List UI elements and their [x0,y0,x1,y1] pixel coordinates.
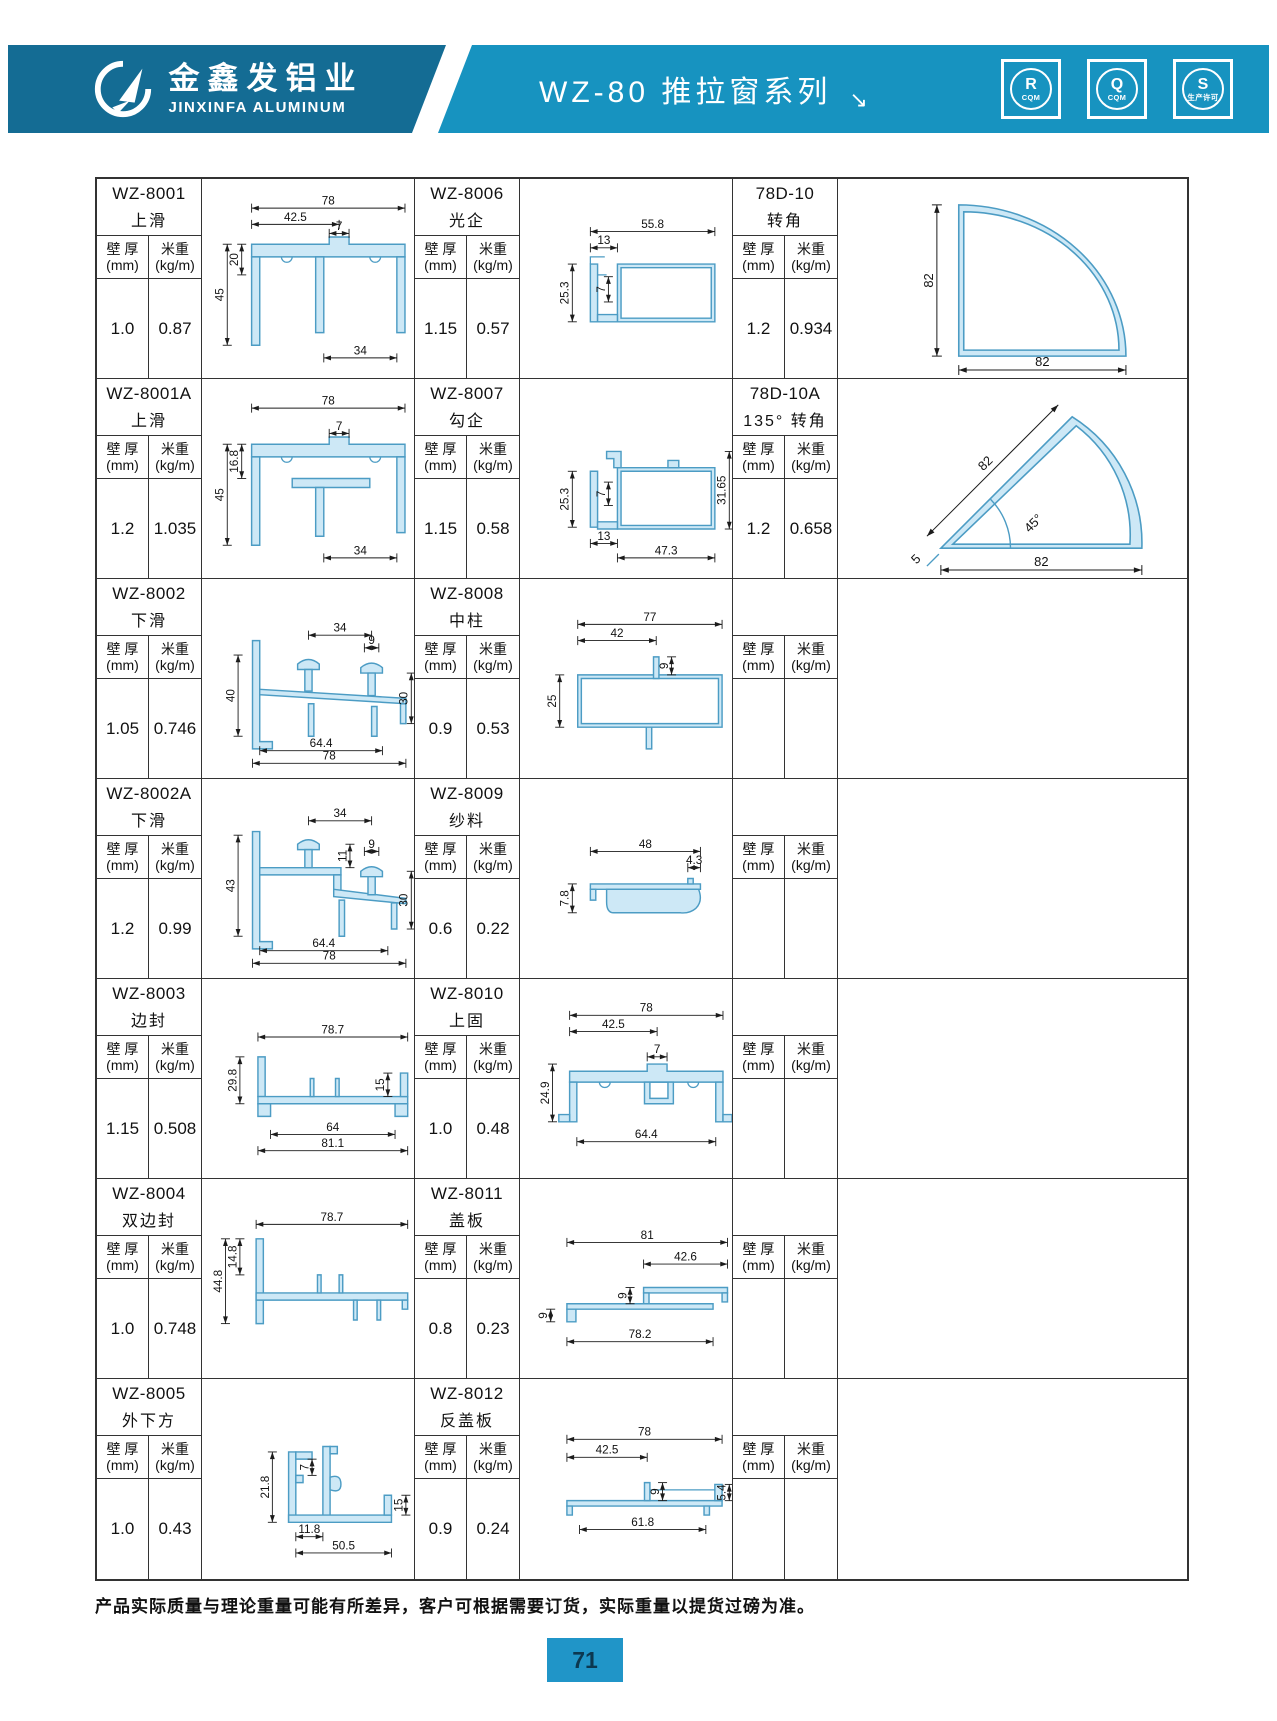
spec-headers: 壁 厚(mm)米重(kg/m) [733,1436,837,1479]
product-title: 78D-10A135° 转角 [733,379,837,436]
product-title: WZ-8009纱料 [415,779,519,836]
product-code: WZ-8002 [112,584,185,604]
svg-text:9: 9 [537,1312,550,1319]
brand-band: 金鑫发铝业 JINXINFA ALUMINUM [8,45,446,133]
svg-text:34: 34 [354,344,368,357]
wall-thickness-header: 壁 厚(mm) [97,836,149,878]
profile-drawing-wz8011: 8142.69978.2 [520,1179,733,1379]
svg-text:9: 9 [649,1488,662,1495]
wall-thickness-value: 0.9 [415,679,467,778]
wall-thickness-header: 壁 厚(mm) [97,636,149,678]
svg-text:64.4: 64.4 [310,737,333,750]
svg-text:7: 7 [595,286,608,293]
product-info-wz8009: WZ-8009纱料 壁 厚(mm)米重(kg/m) 0.60.22 [415,779,520,979]
cert-icon-r-cqm: RCQM [1001,59,1061,119]
spec-headers: 壁 厚(mm)米重(kg/m) [415,836,519,879]
wall-thickness-header: 壁 厚(mm) [97,1236,149,1278]
profile-drawing-wz8009: 484.37.8 [520,779,733,979]
profile-drawing-wz8004: 78.744.814.8 [202,1179,415,1379]
product-title [733,1379,837,1436]
svg-text:78.7: 78.7 [321,1023,344,1036]
product-name: 盖板 [449,1207,485,1231]
table-row-4: WZ-8002A下滑 壁 厚(mm)米重(kg/m) 1.20.99 34119… [97,779,1187,979]
spec-headers: 壁 厚(mm)米重(kg/m) [97,1236,201,1279]
spec-values [733,1479,837,1579]
diagonal-arrow-icon: ↘ [849,87,867,113]
wall-thickness-header: 壁 厚(mm) [415,836,467,878]
wall-thickness-header: 壁 厚(mm) [415,1036,467,1078]
wall-thickness-header: 壁 厚(mm) [733,1236,785,1278]
cert-ring: S生产许可 [1182,68,1224,110]
profile-drawing-wz8005: 21.871511.850.5 [202,1379,415,1579]
svg-text:43: 43 [224,879,237,892]
footer-note: 产品实际质量与理论重量可能有所差异，客户可根据需要订货，实际重量以提货过磅为准。 [95,1592,815,1617]
meter-weight-value: 0.748 [149,1279,201,1378]
spec-values: 1.21.035 [97,479,201,578]
product-info-wz8004: WZ-8004双边封 壁 厚(mm)米重(kg/m) 1.00.748 [97,1179,202,1379]
svg-text:45: 45 [214,488,227,502]
wall-thickness-value: 1.0 [97,1479,149,1579]
svg-text:64.4: 64.4 [312,937,335,950]
profile-drawing-wz8001a: 78716.84534 [202,379,415,579]
svg-text:7: 7 [336,220,343,233]
meter-weight-header: 米重(kg/m) [785,636,837,678]
spec-values: 0.90.24 [415,1479,519,1579]
meter-weight-value: 0.43 [149,1479,201,1579]
profile-drawing-wz8006: 55.81325.37 [520,179,733,379]
meter-weight-header: 米重(kg/m) [467,636,519,678]
svg-text:82: 82 [1034,554,1048,569]
svg-text:78.7: 78.7 [321,1211,344,1224]
product-title: WZ-8004双边封 [97,1179,201,1236]
svg-text:9: 9 [616,1292,629,1299]
cert-icons: RCQM QCQM S生产许可 [1001,59,1233,119]
product-name: 转角 [767,207,803,231]
product-code: WZ-8008 [430,584,503,604]
brand-name-cn: 金鑫发铝业 [169,62,364,96]
profile-drawing-wz8010: 7842.5724.964.4 [520,979,733,1179]
spec-values [733,1279,837,1378]
product-title [733,779,837,836]
product-title: WZ-8008中柱 [415,579,519,636]
cert-ring: RCQM [1010,68,1052,110]
spec-headers: 壁 厚(mm)米重(kg/m) [733,1036,837,1079]
wall-thickness-header: 壁 厚(mm) [733,836,785,878]
table-row-6: WZ-8004双边封 壁 厚(mm)米重(kg/m) 1.00.748 78.7… [97,1179,1187,1379]
spec-headers: 壁 厚(mm)米重(kg/m) [733,1236,837,1279]
svg-text:34: 34 [334,622,348,635]
wall-thickness-value: 1.15 [97,1079,149,1178]
wall-thickness-header: 壁 厚(mm) [733,436,785,478]
cert-icon-qs: S生产许可 [1173,59,1233,119]
profile-drawing-wz8002: 349403064.478 [202,579,415,779]
spec-values: 1.150.57 [415,279,519,378]
product-name: 下滑 [131,807,167,831]
wall-thickness-value: 1.2 [733,479,785,578]
product-info-wz8006: WZ-8006光企 壁 厚(mm)米重(kg/m) 1.150.57 [415,179,520,379]
svg-text:47.3: 47.3 [655,544,678,557]
svg-text:9: 9 [368,838,375,851]
svg-text:24.9: 24.9 [539,1082,552,1105]
spec-values: 1.050.746 [97,679,201,778]
meter-weight-value: 0.58 [467,479,519,578]
spec-headers: 壁 厚(mm)米重(kg/m) [415,1036,519,1079]
cert-icon-q-cqm: QCQM [1087,59,1147,119]
spec-values: 1.00.748 [97,1279,201,1378]
meter-weight-header: 米重(kg/m) [149,1036,201,1078]
product-info-wz8010: WZ-8010上固 壁 厚(mm)米重(kg/m) 1.00.48 [415,979,520,1179]
meter-weight-value: 0.87 [149,279,201,378]
wall-thickness-header: 壁 厚(mm) [733,1036,785,1078]
product-info-empty: 壁 厚(mm)米重(kg/m) [733,979,838,1179]
svg-text:50.5: 50.5 [332,1539,355,1552]
meter-weight-header: 米重(kg/m) [149,636,201,678]
product-code: WZ-8002A [106,784,191,804]
meter-weight-header: 米重(kg/m) [467,836,519,878]
svg-text:42.5: 42.5 [602,1018,625,1031]
table-row-5: WZ-8003边封 壁 厚(mm)米重(kg/m) 1.150.508 78.7… [97,979,1187,1179]
svg-text:11.8: 11.8 [298,1523,320,1536]
svg-text:29.8: 29.8 [226,1068,239,1091]
page-header: 金鑫发铝业 JINXINFA ALUMINUM WZ-80 推拉窗系列↘ RCQ… [8,45,1269,133]
meter-weight-header: 米重(kg/m) [785,236,837,278]
svg-text:61.8: 61.8 [631,1516,654,1529]
spec-values: 0.60.22 [415,879,519,978]
product-code: WZ-8005 [112,1384,185,1404]
product-title [733,579,837,636]
product-info-empty: 壁 厚(mm)米重(kg/m) [733,1179,838,1379]
table-row-1: WZ-8001上滑 壁 厚(mm)米重(kg/m) 1.00.87 7842.5… [97,179,1187,379]
wall-thickness-value: 0.6 [415,879,467,978]
product-info-wz8001a: WZ-8001A上滑 壁 厚(mm)米重(kg/m) 1.21.035 [97,379,202,579]
spec-values: 1.150.58 [415,479,519,578]
svg-text:78.2: 78.2 [629,1328,652,1341]
meter-weight-header: 米重(kg/m) [467,236,519,278]
svg-text:45°: 45° [1021,511,1045,535]
wall-thickness-header: 壁 厚(mm) [415,636,467,678]
svg-text:42: 42 [610,627,623,640]
svg-text:78: 78 [323,950,337,963]
svg-text:7: 7 [654,1043,661,1056]
product-code: WZ-8009 [430,784,503,804]
svg-text:21.8: 21.8 [259,1475,272,1498]
product-title: WZ-8001上滑 [97,179,201,236]
svg-text:5: 5 [908,551,924,567]
product-title: 78D-10转角 [733,179,837,236]
brand-text: 金鑫发铝业 JINXINFA ALUMINUM [169,62,364,115]
spec-values [733,879,837,978]
product-info-empty: 壁 厚(mm)米重(kg/m) [733,779,838,979]
svg-text:13: 13 [597,530,610,543]
spec-values: 1.20.658 [733,479,837,578]
svg-text:25.3: 25.3 [559,282,572,305]
spec-values: 1.20.99 [97,879,201,978]
product-code: WZ-8007 [430,384,503,404]
profile-drawing-wz8007: 25.3731.651347.3 [520,379,733,579]
profile-drawing-wz8002a: 34119433064.478 [202,779,415,979]
meter-weight-header: 米重(kg/m) [785,836,837,878]
product-info-empty: 壁 厚(mm)米重(kg/m) [733,1379,838,1579]
product-code: 78D-10A [750,384,821,404]
profile-drawing-empty [838,979,1187,1179]
table-row-3: WZ-8002下滑 壁 厚(mm)米重(kg/m) 1.050.746 3494… [97,579,1187,779]
product-title: WZ-8011盖板 [415,1179,519,1236]
meter-weight-header: 米重(kg/m) [785,436,837,478]
svg-text:14.8: 14.8 [226,1245,239,1268]
meter-weight-header: 米重(kg/m) [149,236,201,278]
meter-weight-value: 0.53 [467,679,519,778]
spec-headers: 壁 厚(mm)米重(kg/m) [97,636,201,679]
svg-text:9: 9 [658,663,671,670]
svg-text:9: 9 [368,634,375,647]
svg-text:78: 78 [322,195,336,208]
svg-text:16.8: 16.8 [228,449,241,472]
profile-drawing-wz8012: 7842.595.461.8 [520,1379,733,1579]
wall-thickness-value: 1.0 [97,279,149,378]
spec-values: 1.00.87 [97,279,201,378]
meter-weight-header: 米重(kg/m) [467,436,519,478]
profile-drawing-empty [838,779,1187,979]
svg-text:31.65: 31.65 [716,475,729,505]
brand-logo-icon [91,57,155,121]
product-name: 135° 转角 [743,407,827,431]
product-name: 双边封 [122,1207,176,1231]
page-number-badge: 71 [547,1638,623,1682]
product-title: WZ-8012反盖板 [415,1379,519,1436]
product-info-78d10: 78D-10转角 壁 厚(mm)米重(kg/m) 1.20.934 [733,179,838,379]
series-band: WZ-80 推拉窗系列↘ RCQM QCQM S生产许可 [414,45,1269,133]
svg-text:82: 82 [921,273,936,287]
svg-text:42.5: 42.5 [284,211,307,224]
svg-text:4.3: 4.3 [686,854,702,867]
spec-headers: 壁 厚(mm)米重(kg/m) [97,1036,201,1079]
brand-name-en: JINXINFA ALUMINUM [169,99,364,116]
svg-text:45: 45 [214,288,227,302]
spec-headers: 壁 厚(mm)米重(kg/m) [415,1436,519,1479]
profile-table: WZ-8001上滑 壁 厚(mm)米重(kg/m) 1.00.87 7842.5… [95,177,1189,1581]
svg-text:64.4: 64.4 [635,1128,658,1141]
svg-text:42.6: 42.6 [674,1250,697,1263]
svg-text:25.3: 25.3 [559,488,572,511]
svg-text:7: 7 [595,491,608,498]
svg-text:78: 78 [322,395,336,408]
meter-weight-value: 0.658 [785,479,837,578]
profile-drawing-78d10: 8282 [838,179,1187,379]
product-code: WZ-8001 [112,184,185,204]
product-name: 上滑 [131,207,167,231]
svg-text:64: 64 [326,1121,340,1134]
spec-headers: 壁 厚(mm)米重(kg/m) [415,1236,519,1279]
series-title: WZ-80 推拉窗系列↘ [539,67,868,111]
wall-thickness-header: 壁 厚(mm) [415,236,467,278]
product-info-wz8002a: WZ-8002A下滑 壁 厚(mm)米重(kg/m) 1.20.99 [97,779,202,979]
product-code: WZ-8012 [430,1384,503,1404]
svg-text:30: 30 [398,691,411,705]
product-title: WZ-8003边封 [97,979,201,1036]
profile-drawing-wz8003: 78.729.8156481.1 [202,979,415,1179]
svg-text:40: 40 [224,689,237,703]
product-info-wz8007: WZ-8007勾企 壁 厚(mm)米重(kg/m) 1.150.58 [415,379,520,579]
wall-thickness-value: 1.0 [415,1079,467,1178]
spec-headers: 壁 厚(mm)米重(kg/m) [415,436,519,479]
wall-thickness-header: 壁 厚(mm) [97,436,149,478]
meter-weight-header: 米重(kg/m) [785,1436,837,1478]
product-title [733,1179,837,1236]
spec-headers: 壁 厚(mm)米重(kg/m) [733,636,837,679]
product-code: WZ-8006 [430,184,503,204]
svg-text:78: 78 [323,750,337,763]
product-name: 反盖板 [440,1407,494,1431]
profile-drawing-wz8008: 7742925 [520,579,733,779]
product-code: WZ-8004 [112,1184,185,1204]
svg-text:15: 15 [392,1498,405,1512]
page-number: 71 [572,1647,598,1674]
product-code: WZ-8001A [106,384,191,404]
svg-text:20: 20 [228,253,241,267]
product-name: 中柱 [449,607,485,631]
spec-headers: 壁 厚(mm)米重(kg/m) [97,436,201,479]
meter-weight-header: 米重(kg/m) [149,1436,201,1478]
spec-headers: 壁 厚(mm)米重(kg/m) [97,1436,201,1479]
meter-weight-value: 0.23 [467,1279,519,1378]
product-title: WZ-8010上固 [415,979,519,1036]
wall-thickness-value: 0.8 [415,1279,467,1378]
wall-thickness-value: 1.15 [415,279,467,378]
product-info-wz8001: WZ-8001上滑 壁 厚(mm)米重(kg/m) 1.00.87 [97,179,202,379]
product-code: WZ-8003 [112,984,185,1004]
meter-weight-value: 0.22 [467,879,519,978]
wall-thickness-header: 壁 厚(mm) [97,1436,149,1478]
meter-weight-value: 1.035 [149,479,201,578]
svg-text:81: 81 [641,1229,654,1242]
wall-thickness-header: 壁 厚(mm) [415,1236,467,1278]
product-title: WZ-8002下滑 [97,579,201,636]
meter-weight-header: 米重(kg/m) [467,1236,519,1278]
product-name: 下滑 [131,607,167,631]
product-info-wz8008: WZ-8008中柱 壁 厚(mm)米重(kg/m) 0.90.53 [415,579,520,779]
product-title [733,979,837,1036]
product-name: 边封 [131,1007,167,1031]
product-info-wz8002: WZ-8002下滑 壁 厚(mm)米重(kg/m) 1.050.746 [97,579,202,779]
spec-headers: 壁 厚(mm)米重(kg/m) [97,836,201,879]
svg-text:82: 82 [1035,354,1049,369]
wall-thickness-header: 壁 厚(mm) [415,436,467,478]
product-info-wz8005: WZ-8005外下方 壁 厚(mm)米重(kg/m) 1.00.43 [97,1379,202,1579]
spec-values: 1.00.48 [415,1079,519,1178]
spec-values [733,1079,837,1178]
wall-thickness-header: 壁 厚(mm) [733,1436,785,1478]
product-info-wz8012: WZ-8012反盖板 壁 厚(mm)米重(kg/m) 0.90.24 [415,1379,520,1579]
svg-text:77: 77 [643,611,656,624]
spec-headers: 壁 厚(mm)米重(kg/m) [733,436,837,479]
table-row-7: WZ-8005外下方 壁 厚(mm)米重(kg/m) 1.00.43 21.87… [97,1379,1187,1579]
product-title: WZ-8005外下方 [97,1379,201,1436]
svg-text:48: 48 [639,838,653,851]
profile-drawing-empty [838,579,1187,779]
cert-ring: QCQM [1096,68,1138,110]
product-info-78d10a: 78D-10A135° 转角 壁 厚(mm)米重(kg/m) 1.20.658 [733,379,838,579]
product-code: 78D-10 [756,184,815,204]
svg-text:7.8: 7.8 [559,890,572,907]
wall-thickness-value: 1.2 [97,879,149,978]
profile-drawing-wz8001: 7842.57204534 [202,179,415,379]
svg-text:81.1: 81.1 [321,1137,344,1150]
spec-values: 0.90.53 [415,679,519,778]
meter-weight-header: 米重(kg/m) [467,1036,519,1078]
svg-text:55.8: 55.8 [641,218,664,231]
product-name: 光企 [449,207,485,231]
svg-text:34: 34 [334,807,348,820]
svg-text:11: 11 [336,850,349,862]
wall-thickness-value: 1.2 [733,279,785,378]
svg-text:34: 34 [354,544,368,557]
product-code: WZ-8011 [431,1184,503,1204]
product-title: WZ-8006光企 [415,179,519,236]
product-title: WZ-8002A下滑 [97,779,201,836]
product-name: 上滑 [131,407,167,431]
svg-text:7: 7 [298,1464,311,1471]
spec-headers: 壁 厚(mm)米重(kg/m) [733,236,837,279]
product-title: WZ-8001A上滑 [97,379,201,436]
meter-weight-value: 0.24 [467,1479,519,1579]
meter-weight-value: 0.48 [467,1079,519,1178]
product-info-wz8011: WZ-8011盖板 壁 厚(mm)米重(kg/m) 0.80.23 [415,1179,520,1379]
table-row-2: WZ-8001A上滑 壁 厚(mm)米重(kg/m) 1.21.035 7871… [97,379,1187,579]
wall-thickness-value: 1.15 [415,479,467,578]
meter-weight-value: 0.934 [785,279,837,378]
spec-values: 1.150.508 [97,1079,201,1178]
svg-text:5.4: 5.4 [716,1484,729,1501]
svg-text:78: 78 [638,1426,652,1439]
spec-headers: 壁 厚(mm)米重(kg/m) [733,836,837,879]
product-info-empty: 壁 厚(mm)米重(kg/m) [733,579,838,779]
product-title: WZ-8007勾企 [415,379,519,436]
product-name: 外下方 [122,1407,176,1431]
profile-drawing-empty [838,1379,1187,1579]
wall-thickness-header: 壁 厚(mm) [97,236,149,278]
meter-weight-header: 米重(kg/m) [149,836,201,878]
meter-weight-value: 0.57 [467,279,519,378]
meter-weight-header: 米重(kg/m) [467,1436,519,1478]
product-name: 勾企 [449,407,485,431]
svg-text:25: 25 [546,694,559,708]
wall-thickness-header: 壁 厚(mm) [733,636,785,678]
profile-drawing-empty [838,1179,1187,1379]
svg-text:42.5: 42.5 [596,1444,619,1457]
wall-thickness-header: 壁 厚(mm) [733,236,785,278]
svg-text:30: 30 [398,893,411,907]
svg-text:7: 7 [336,420,343,433]
meter-weight-header: 米重(kg/m) [149,436,201,478]
product-code: WZ-8010 [430,984,503,1004]
wall-thickness-value: 1.2 [97,479,149,578]
meter-weight-header: 米重(kg/m) [785,1236,837,1278]
meter-weight-value: 0.99 [149,879,201,978]
spec-values [733,679,837,778]
wall-thickness-value: 1.05 [97,679,149,778]
spec-headers: 壁 厚(mm)米重(kg/m) [415,636,519,679]
wall-thickness-header: 壁 厚(mm) [97,1036,149,1078]
profile-drawing-78d10a: 8245°582 [838,379,1187,579]
meter-weight-value: 0.746 [149,679,201,778]
svg-text:44.8: 44.8 [212,1269,225,1292]
spec-headers: 壁 厚(mm)米重(kg/m) [415,236,519,279]
spec-values: 0.80.23 [415,1279,519,1378]
product-info-wz8003: WZ-8003边封 壁 厚(mm)米重(kg/m) 1.150.508 [97,979,202,1179]
wall-thickness-value: 0.9 [415,1479,467,1579]
product-name: 上固 [449,1007,485,1031]
wall-thickness-header: 壁 厚(mm) [415,1436,467,1478]
